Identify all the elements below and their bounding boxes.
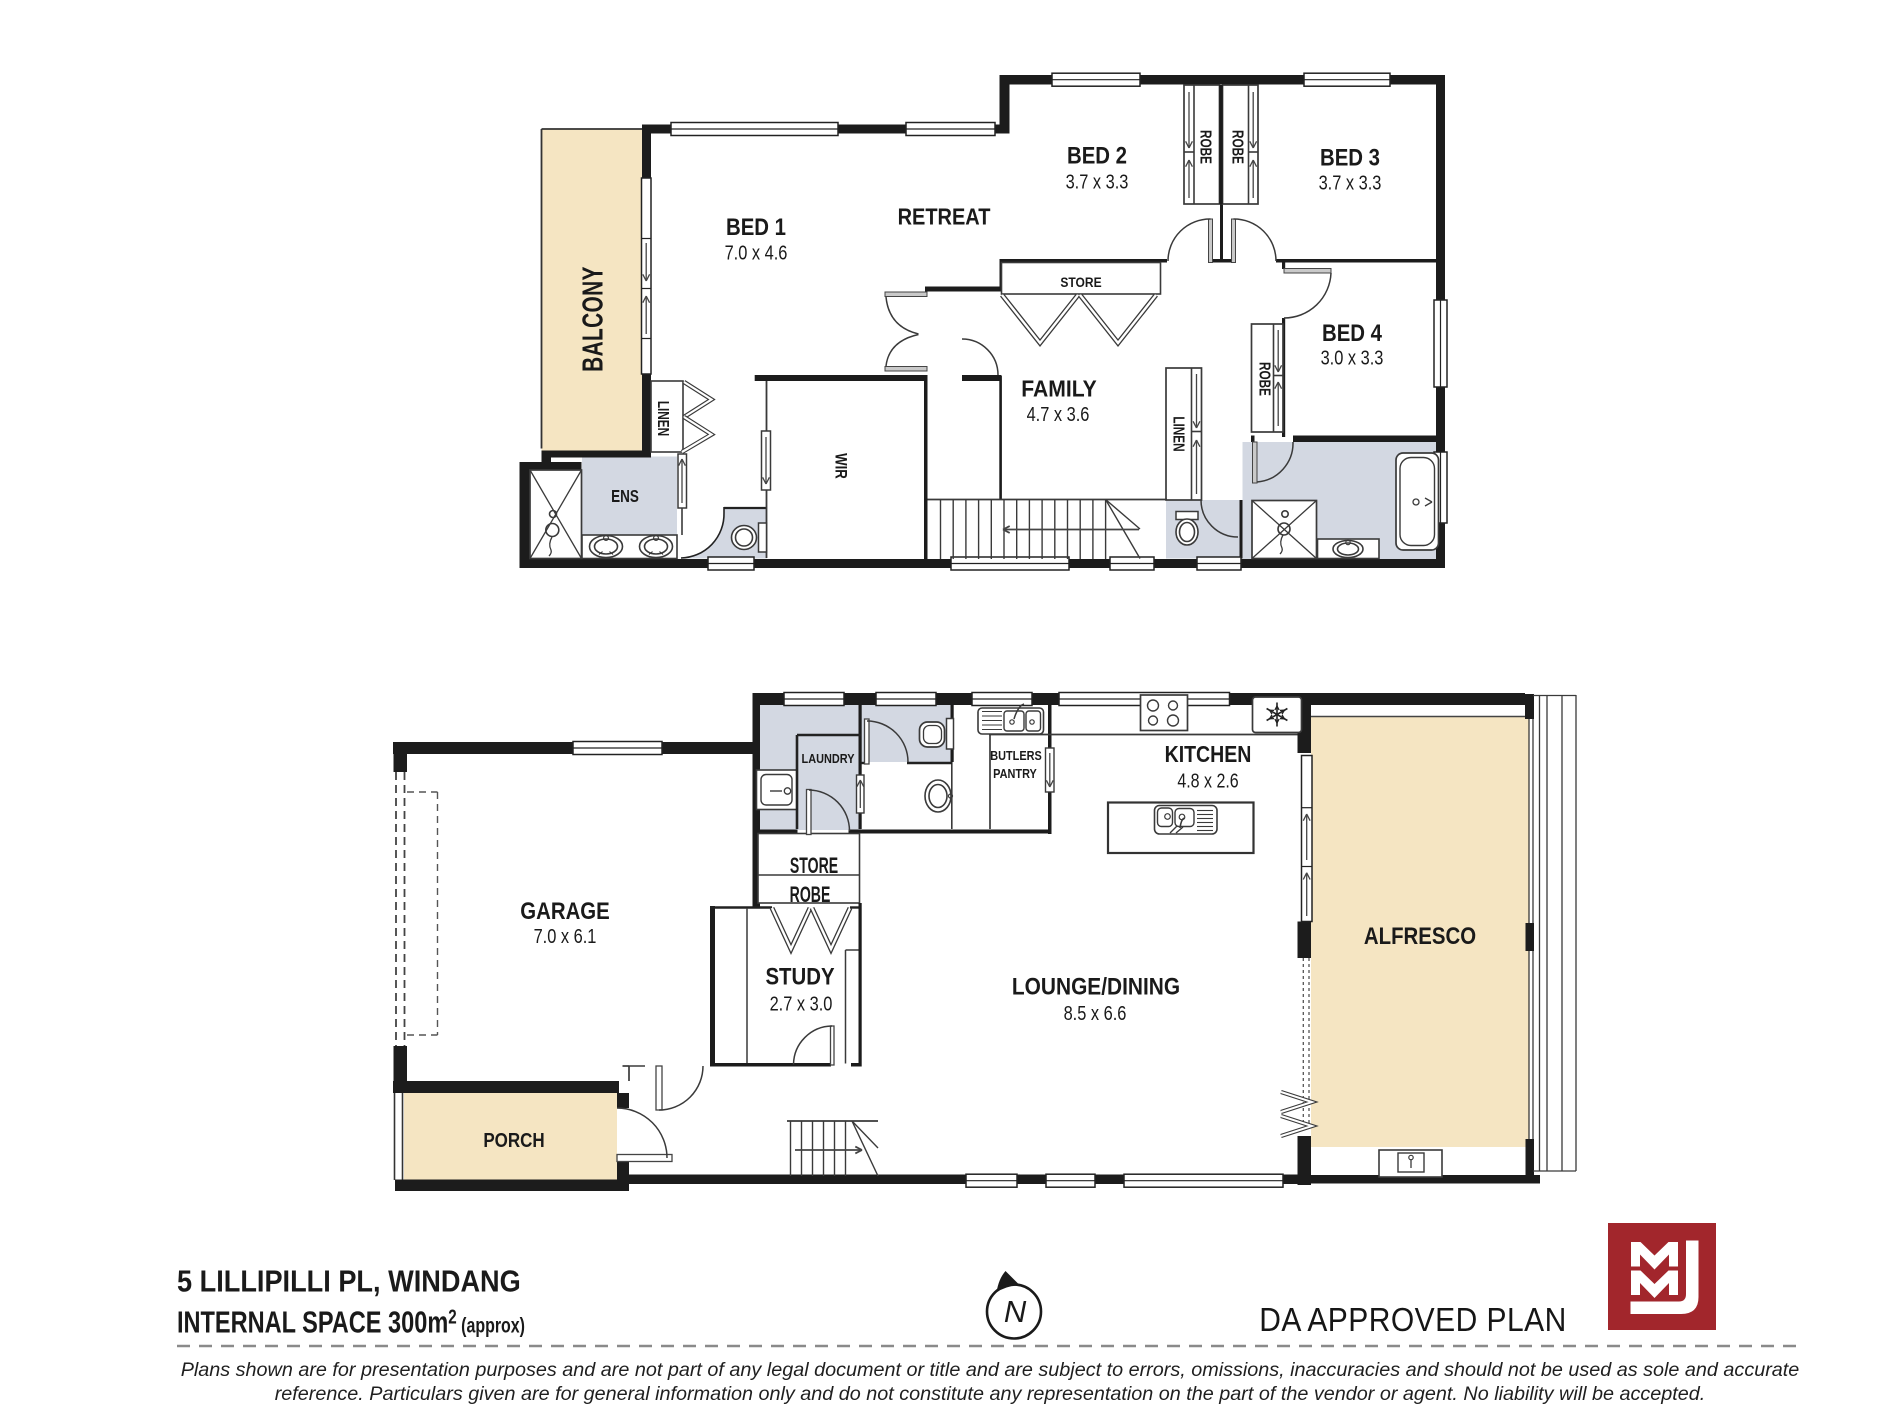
svg-text:STORE: STORE	[790, 853, 838, 878]
svg-text:3.0 x 3.3: 3.0 x 3.3	[1321, 346, 1384, 369]
svg-text:2.7 x 3.0: 2.7 x 3.0	[770, 992, 833, 1015]
svg-text:BED 2: BED 2	[1067, 142, 1127, 169]
svg-text:PANTRY: PANTRY	[993, 766, 1037, 781]
svg-text:reference. Particulars given a: reference. Particulars given are for gen…	[275, 1383, 1706, 1405]
svg-text:GARAGE: GARAGE	[520, 897, 610, 924]
svg-text:DA APPROVED PLAN: DA APPROVED PLAN	[1259, 1301, 1567, 1339]
svg-text:LINEN: LINEN	[1170, 416, 1187, 451]
svg-text:LAUNDRY: LAUNDRY	[802, 751, 855, 766]
svg-text:LINEN: LINEN	[655, 401, 672, 436]
svg-text:5 LILLIPILLI PL, WINDANG: 5 LILLIPILLI PL, WINDANG	[177, 1265, 521, 1299]
svg-text:KITCHEN: KITCHEN	[1165, 742, 1252, 768]
svg-text:BUTLERS: BUTLERS	[990, 748, 1042, 763]
svg-text:ALFRESCO: ALFRESCO	[1364, 922, 1476, 949]
svg-text:FAMILY: FAMILY	[1021, 375, 1097, 401]
svg-text:ENS: ENS	[611, 487, 639, 506]
svg-text:N: N	[1004, 1294, 1027, 1329]
svg-text:ROBE: ROBE	[1197, 130, 1214, 164]
svg-text:3.7 x 3.3: 3.7 x 3.3	[1319, 171, 1382, 194]
svg-text:7.0 x 4.6: 7.0 x 4.6	[725, 241, 788, 264]
svg-text:STUDY: STUDY	[765, 963, 834, 990]
svg-text:Plans shown are for presentati: Plans shown are for presentation purpose…	[181, 1359, 1800, 1381]
svg-text:8.5 x 6.6: 8.5 x 6.6	[1064, 1001, 1127, 1024]
svg-text:BED 1: BED 1	[726, 213, 786, 240]
svg-text:WIR: WIR	[831, 453, 850, 479]
svg-text:7.0 x 6.1: 7.0 x 6.1	[534, 924, 597, 947]
svg-text:ROBE: ROBE	[1256, 362, 1273, 396]
svg-text:STORE: STORE	[1060, 274, 1102, 290]
svg-text:ROBE: ROBE	[1229, 130, 1246, 164]
svg-text:BALCONY: BALCONY	[577, 266, 609, 372]
svg-text:RETREAT: RETREAT	[898, 203, 991, 230]
svg-text:3.7 x 3.3: 3.7 x 3.3	[1066, 170, 1129, 193]
svg-text:BED 4: BED 4	[1322, 319, 1383, 346]
svg-text:LOUNGE/DINING: LOUNGE/DINING	[1012, 973, 1180, 1000]
svg-text:4.7 x 3.6: 4.7 x 3.6	[1027, 402, 1090, 425]
svg-text:BED 3: BED 3	[1320, 144, 1380, 171]
svg-text:ROBE: ROBE	[790, 882, 831, 907]
svg-text:4.8 x 2.6: 4.8 x 2.6	[1177, 770, 1238, 792]
svg-text:PORCH: PORCH	[483, 1129, 544, 1152]
